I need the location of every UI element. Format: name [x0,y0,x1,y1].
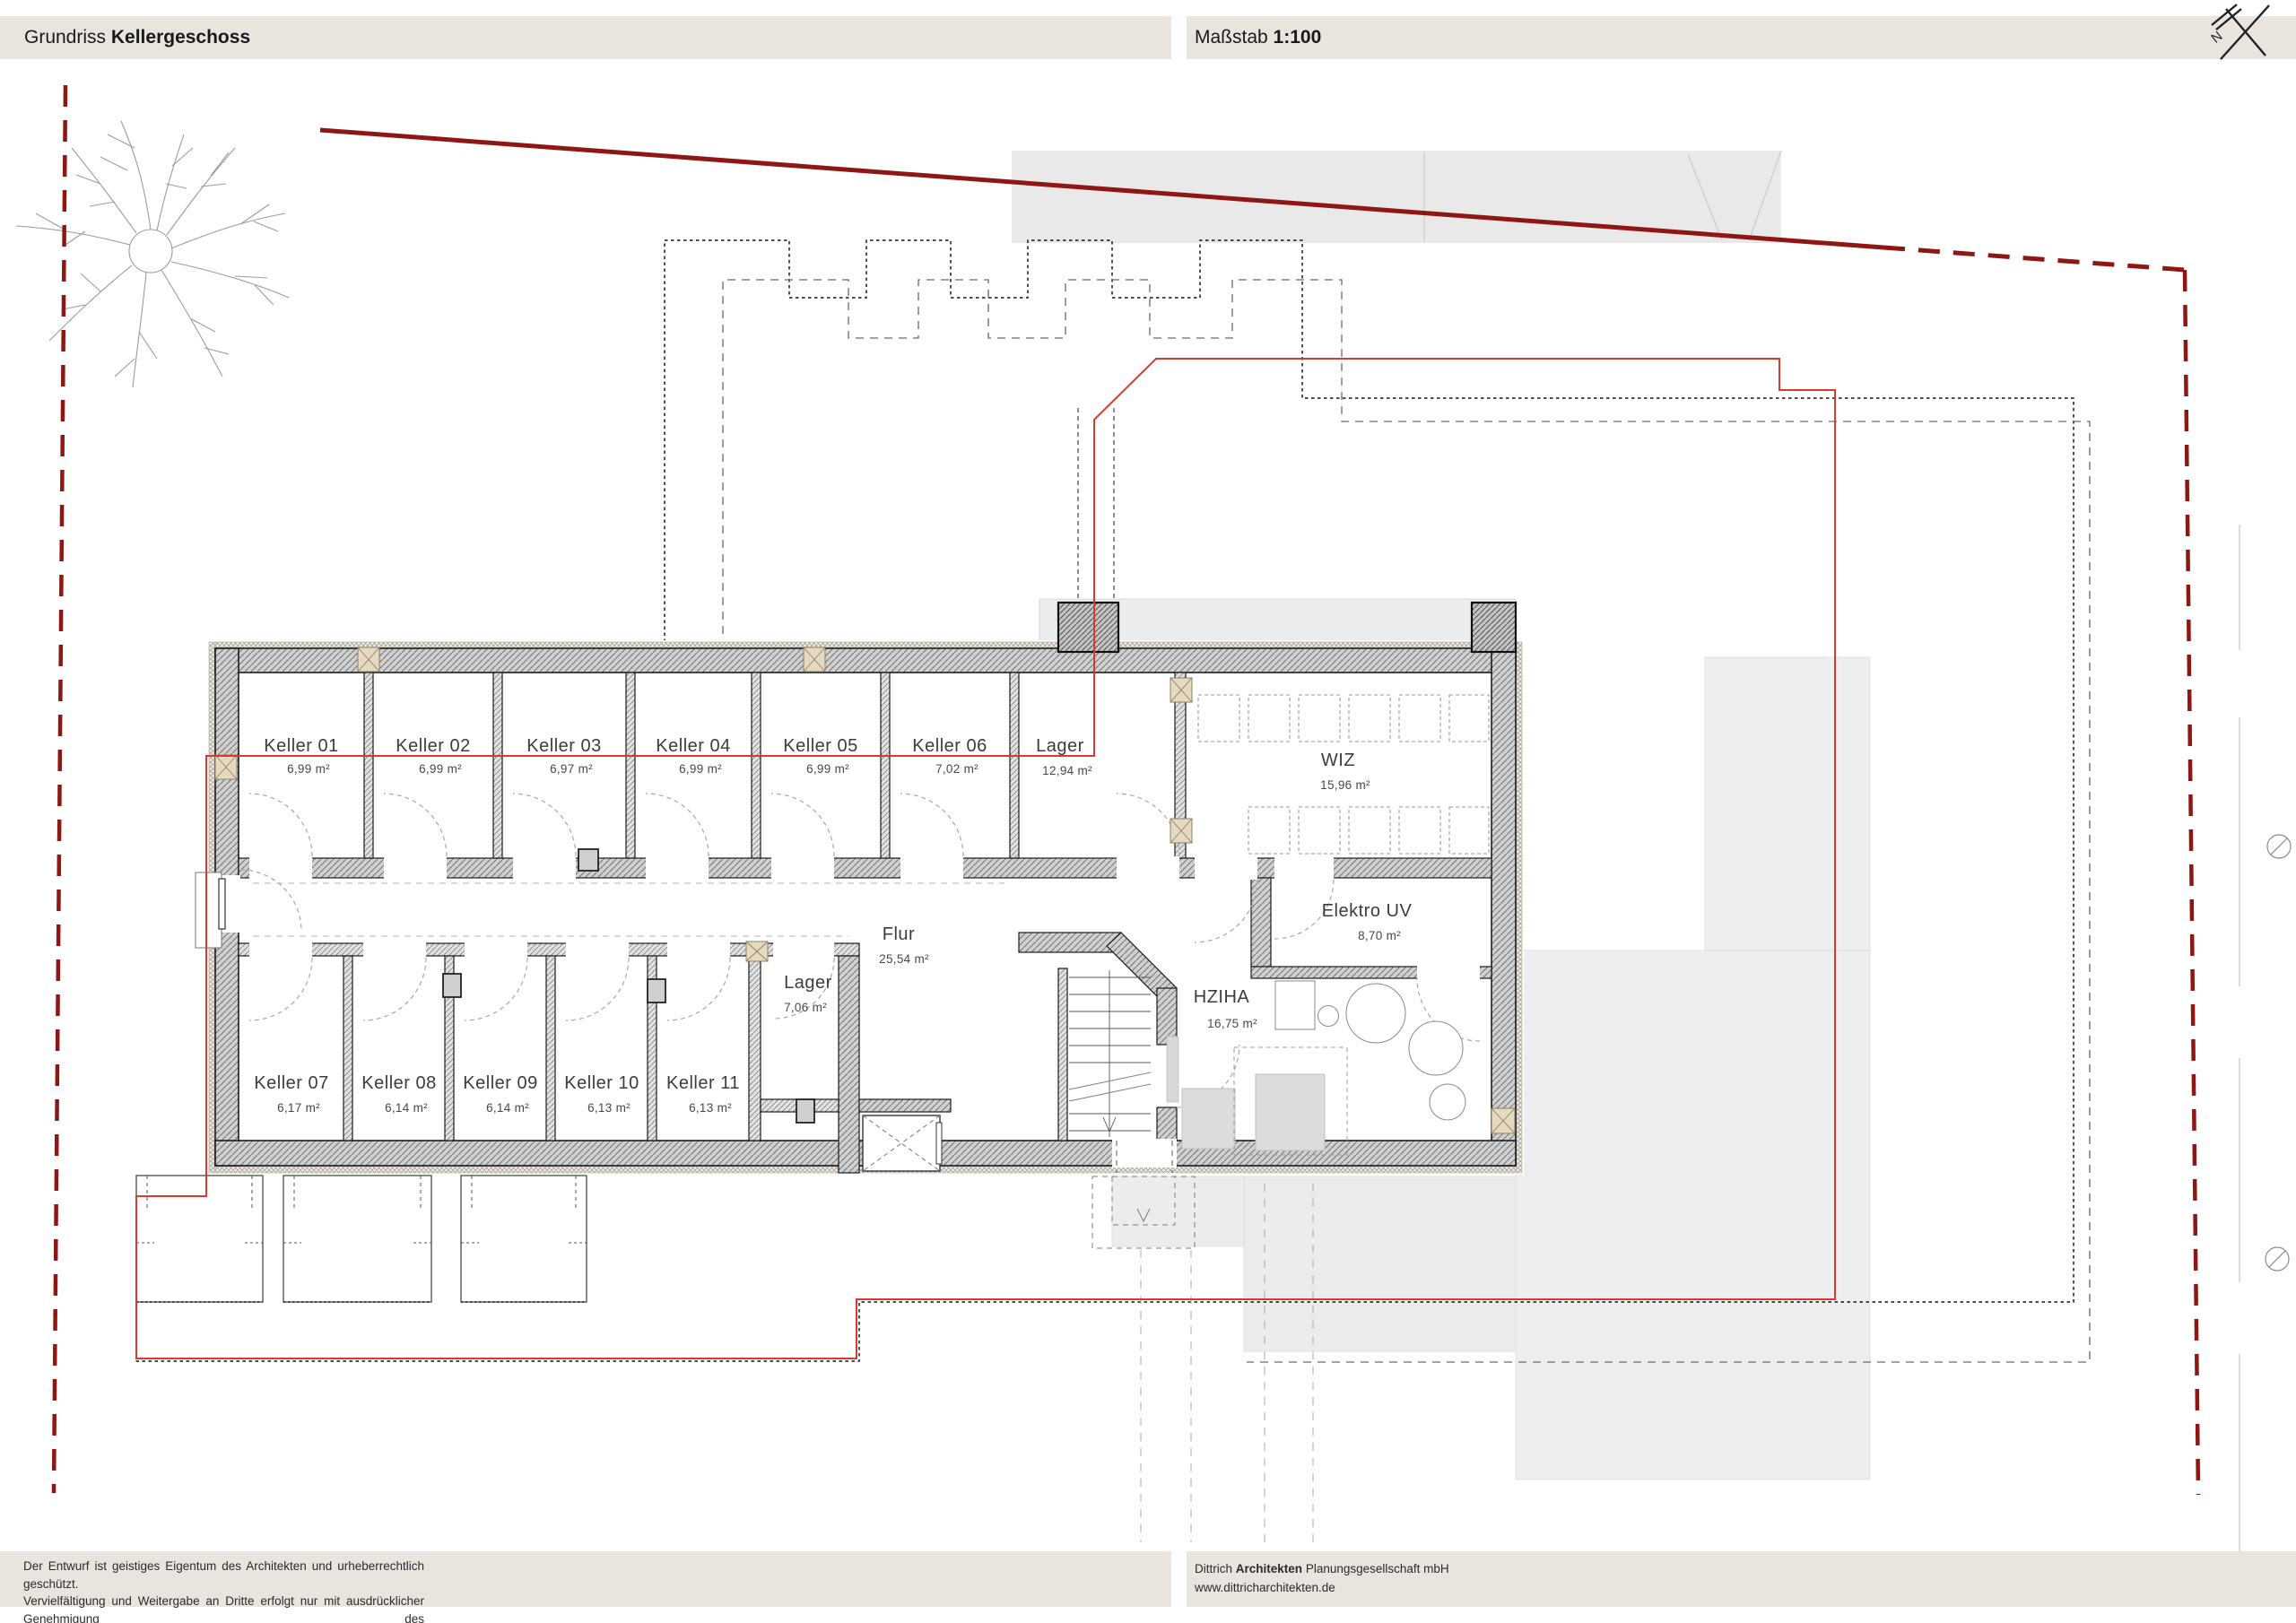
room-label-hziha: HZIHA [1194,987,1250,1007]
scale-bar: Maßstab 1:100 [1187,16,2296,59]
plan-title: Kellergeschoss [111,27,250,48]
copyright-line-2: Vervielfältigung und Weitergabe an Dritt… [23,1593,424,1623]
room-area-keller-03: 6,97 m² [550,762,593,776]
room-label-keller-07: Keller 07 [254,1073,328,1093]
room-area-keller-02: 6,99 m² [419,762,462,776]
firm-name: Architekten [1236,1562,1302,1575]
room-label-keller-11: Keller 11 [666,1073,740,1093]
firm-prefix: Dittrich [1195,1562,1232,1575]
room-label-flur: Flur [883,924,915,944]
room-area-wiz: 15,96 m² [1320,778,1370,792]
room-label-keller-06: Keller 06 [912,736,987,756]
site-tree-icon [16,121,289,387]
room-area-keller-04: 6,99 m² [679,762,722,776]
room-area-keller-07: 6,17 m² [277,1101,320,1115]
svg-text:N: N [2208,29,2225,47]
firm-suffix: Planungsgesellschaft mbH [1306,1562,1449,1575]
room-label-keller-08: Keller 08 [361,1073,436,1093]
room-area-keller-06: 7,02 m² [935,762,978,776]
room-area-hziha: 16,75 m² [1207,1017,1257,1030]
title-bar: Grundriss Kellergeschoss [0,16,1171,59]
lightwells [136,1176,587,1302]
room-area-lager-main: 12,94 m² [1042,764,1092,777]
room-area-keller-11: 6,13 m² [689,1101,732,1115]
floorplan-drawing: Keller 01 6,99 m² Keller 02 6,99 m² Kell… [0,0,2296,1623]
chimney-block [1472,603,1516,652]
room-label-lager-small: Lager [784,973,832,993]
architect-firm: Dittrich Architekten Planungsgesellschaf… [1195,1559,2296,1578]
room-label-keller-05: Keller 05 [783,736,857,756]
plan-title-prefix: Grundriss [24,27,106,48]
north-arrow-icon: N [2205,0,2282,63]
architect-box: Dittrich Architekten Planungsgesellschaf… [1187,1551,2296,1607]
chimney-block [1058,603,1118,652]
room-area-elektro: 8,70 m² [1358,929,1401,942]
room-area-keller-01: 6,99 m² [287,762,330,776]
room-label-lager-main: Lager [1036,736,1084,756]
entrance-left [196,872,225,948]
room-label-keller-09: Keller 09 [463,1073,537,1093]
scale-value: 1:100 [1274,27,1322,48]
room-area-flur: 25,54 m² [879,952,929,966]
margin-marks [2239,525,2291,1603]
room-area-lager-small: 7,06 m² [784,1001,827,1014]
circle-slash-icon [2267,835,2291,858]
elevator [863,1115,942,1171]
room-label-keller-04: Keller 04 [656,736,730,756]
room-label-keller-10: Keller 10 [564,1073,639,1093]
room-area-keller-05: 6,99 m² [806,762,849,776]
floorplan-sheet: Keller 01 6,99 m² Keller 02 6,99 m² Kell… [0,0,2296,1623]
architect-website: www.dittricharchitekten.de [1195,1578,2296,1597]
room-label-keller-02: Keller 02 [396,736,470,756]
copyright-box: Der Entwurf ist geistiges Eigentum des A… [0,1551,1171,1607]
room-label-elektro: Elektro UV [1322,901,1413,921]
copyright-line-1: Der Entwurf ist geistiges Eigentum des A… [23,1558,424,1593]
room-area-keller-10: 6,13 m² [587,1101,631,1115]
scale-label: Maßstab [1195,27,1268,48]
circle-slash-icon [2266,1247,2289,1271]
room-label-wiz: WIZ [1321,751,1355,770]
room-area-keller-08: 6,14 m² [385,1101,428,1115]
room-area-keller-09: 6,14 m² [486,1101,529,1115]
room-label-keller-03: Keller 03 [526,736,601,756]
room-label-keller-01: Keller 01 [264,736,338,756]
